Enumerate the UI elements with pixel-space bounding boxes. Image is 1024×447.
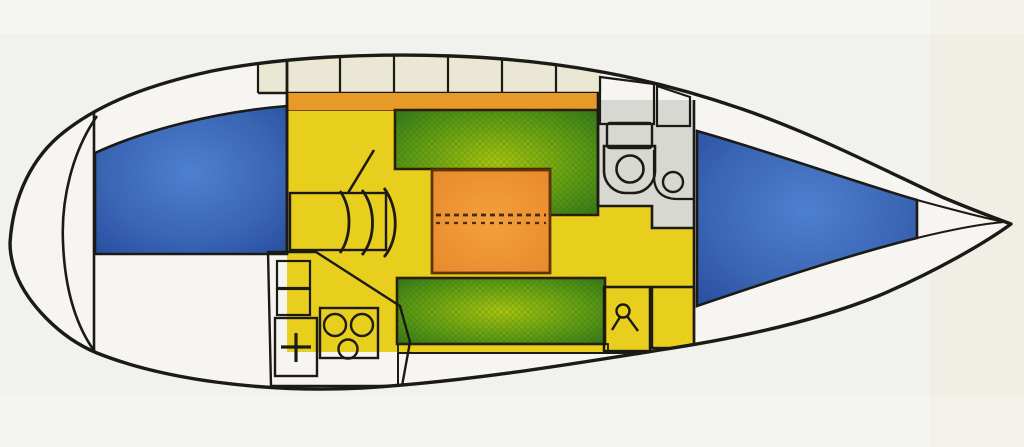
deck-plan-svg: [0, 0, 1024, 447]
saloon-table: [432, 170, 550, 273]
scan-streak-top: [0, 0, 1024, 34]
scanned-deck-plan: [0, 0, 1024, 447]
scan-streak-bottom: [0, 395, 1024, 447]
side-deck-strip: [287, 93, 598, 111]
starboard-settee-texture: [397, 278, 605, 344]
table-top: [432, 170, 550, 273]
